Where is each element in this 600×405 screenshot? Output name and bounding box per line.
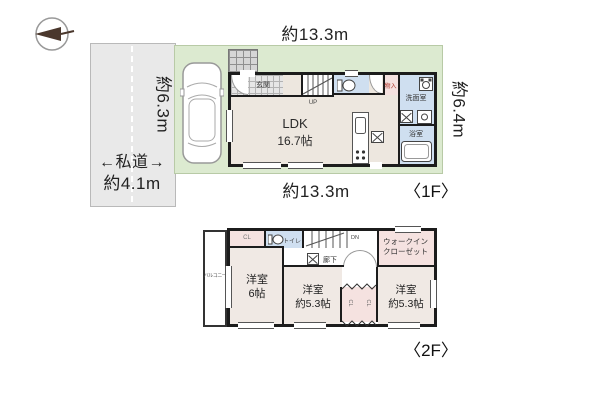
- bedroom3-label: 洋室 約5.3帖: [378, 284, 434, 311]
- bedroom2-size: 約5.3帖: [284, 298, 342, 312]
- wic-label-line1: ウォークイン: [378, 237, 433, 246]
- floor-plan-image: ←私道→ 約4.1m 約13.3m 約13.3m 約6.3m 約6.4m 〈1F…: [0, 0, 600, 405]
- wall: [230, 246, 284, 248]
- folding-door-icon: [342, 320, 376, 327]
- floor1-tag: 〈1F〉: [403, 177, 459, 202]
- wall: [284, 265, 344, 267]
- door-gap: [370, 162, 382, 169]
- hallway-x-marker: [307, 253, 319, 265]
- refrigerator-space-x-marker: [371, 131, 384, 143]
- washing-machine-icon: [419, 77, 433, 91]
- bathtub-icon: [401, 141, 432, 162]
- stairs-1f: [303, 75, 334, 95]
- laundry-space-x-marker: [400, 110, 413, 123]
- bedroom2-name: 洋室: [284, 284, 342, 298]
- bedroom3-size: 約5.3帖: [378, 298, 434, 312]
- car-icon: [180, 61, 224, 165]
- window: [288, 162, 323, 169]
- monoire-label: 物入: [383, 81, 398, 90]
- floor2-tag: 〈2F〉: [403, 336, 459, 361]
- closet-label: CL: [365, 296, 371, 310]
- genkan-label: 玄関: [248, 82, 278, 91]
- wall: [231, 95, 334, 97]
- window: [430, 280, 437, 308]
- window: [388, 322, 420, 329]
- bedroom3-name: 洋室: [378, 284, 434, 298]
- wall: [301, 75, 303, 95]
- dn-label: DN: [351, 235, 365, 241]
- washroom-label: 洗面室: [399, 95, 433, 104]
- folding-door-icon: [342, 283, 376, 290]
- bathroom-label: 浴室: [399, 131, 433, 140]
- dimension-right: 約6.4m: [449, 81, 474, 139]
- wic-label-line2: クローゼット: [378, 247, 433, 256]
- kitchen-counter: [352, 112, 369, 164]
- dimension-left: 約6.3m: [153, 76, 178, 134]
- bedroom1-label: 洋室 6帖: [230, 273, 284, 302]
- road-width-label: 約4.1m: [92, 169, 172, 194]
- toilet-icon: [337, 78, 357, 93]
- compass-north-icon: [31, 13, 77, 57]
- window: [226, 110, 233, 142]
- entrance-door-gap: [240, 70, 255, 77]
- closet-label: CL: [347, 296, 353, 310]
- toilet-label: トイレ: [283, 236, 303, 245]
- ldk-size-label: 16.7帖: [258, 132, 332, 149]
- dimension-top: 約13.3m: [230, 20, 400, 45]
- bedroom1-size: 6帖: [230, 287, 284, 301]
- bedroom1-name: 洋室: [230, 273, 284, 287]
- vanity-sink-icon: [417, 110, 432, 124]
- ldk-label: LDK: [258, 116, 332, 131]
- bedroom2-label: 洋室 約5.3帖: [284, 284, 342, 311]
- window: [225, 266, 232, 308]
- dimension-bottom: 約13.3m: [240, 177, 392, 202]
- wall: [332, 75, 334, 95]
- window: [395, 226, 421, 233]
- window: [238, 322, 274, 329]
- closet-label: CL: [230, 235, 264, 241]
- up-label: UP: [303, 100, 323, 106]
- window: [345, 70, 358, 77]
- window: [294, 322, 326, 329]
- window: [243, 162, 281, 169]
